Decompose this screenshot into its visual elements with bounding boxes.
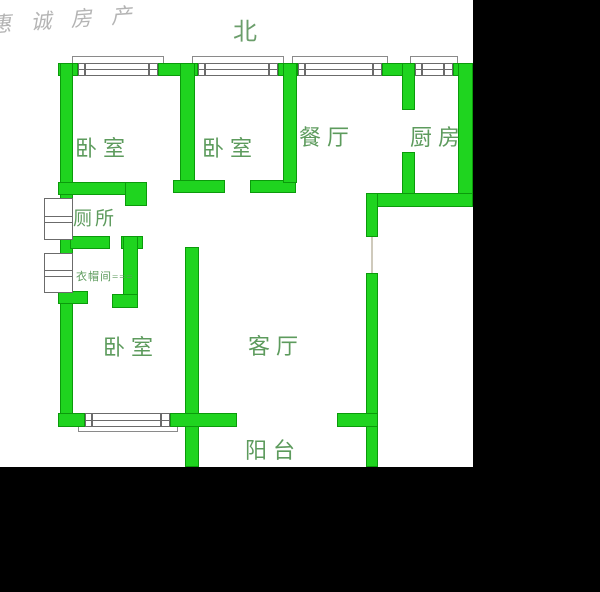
room-label-living: 客厅 — [248, 329, 304, 361]
room-label-bedroom-1: 卧室 — [75, 131, 131, 163]
wall — [185, 247, 199, 467]
room-label-balcony: 阳台 — [245, 433, 301, 465]
door-leaf — [371, 237, 373, 273]
wall — [170, 413, 237, 427]
wall — [366, 193, 473, 207]
window — [78, 63, 158, 76]
wall — [60, 292, 73, 425]
wall — [58, 413, 85, 427]
wall — [112, 294, 138, 308]
room-label-bedroom-2: 卧室 — [202, 131, 258, 163]
letterbox-bottom — [0, 467, 473, 592]
floor-plan: 惠 诚 房 产 北 — [0, 0, 600, 592]
side-window — [44, 198, 73, 240]
wall — [180, 63, 195, 193]
window — [415, 63, 453, 76]
wall — [366, 193, 378, 237]
letterbox-right — [473, 0, 600, 592]
room-label-dining: 餐厅 — [299, 120, 355, 152]
wall — [173, 180, 225, 193]
watermark: 惠 诚 房 产 — [0, 0, 140, 39]
wall — [337, 413, 378, 427]
wall — [125, 182, 147, 206]
room-label-toilet: 厕所 — [73, 204, 117, 231]
window — [85, 413, 170, 427]
wall — [402, 63, 415, 110]
room-label-cloakroom: 衣帽间=== — [76, 268, 134, 284]
wall — [283, 63, 297, 183]
north-label: 北 — [233, 12, 257, 47]
side-window — [44, 253, 73, 293]
window — [198, 63, 278, 76]
window — [298, 63, 382, 76]
room-label-bedroom-3: 卧室 — [103, 330, 159, 362]
wall — [366, 273, 378, 467]
wall — [70, 236, 110, 249]
wall — [60, 63, 73, 200]
room-label-kitchen: 厨房 — [410, 120, 466, 152]
